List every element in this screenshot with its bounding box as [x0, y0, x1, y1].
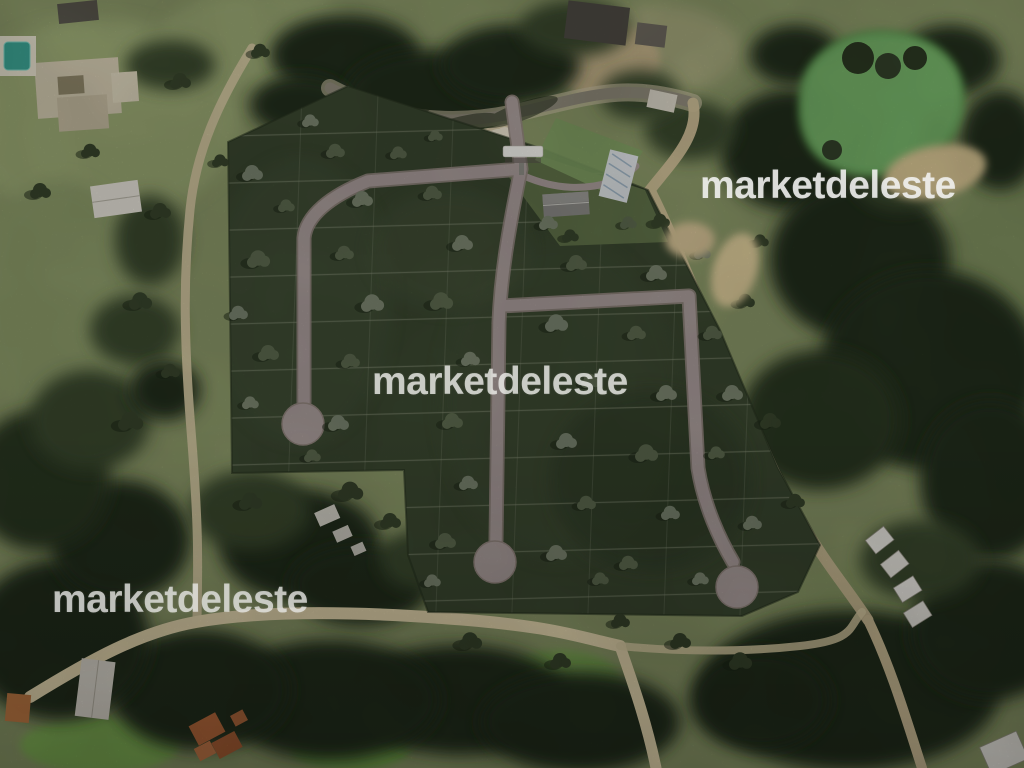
- photo-grain: [0, 0, 1024, 768]
- aerial-map-canvas: [0, 0, 1024, 768]
- satellite-photo: marketdeleste marketdeleste marketdelest…: [0, 0, 1024, 768]
